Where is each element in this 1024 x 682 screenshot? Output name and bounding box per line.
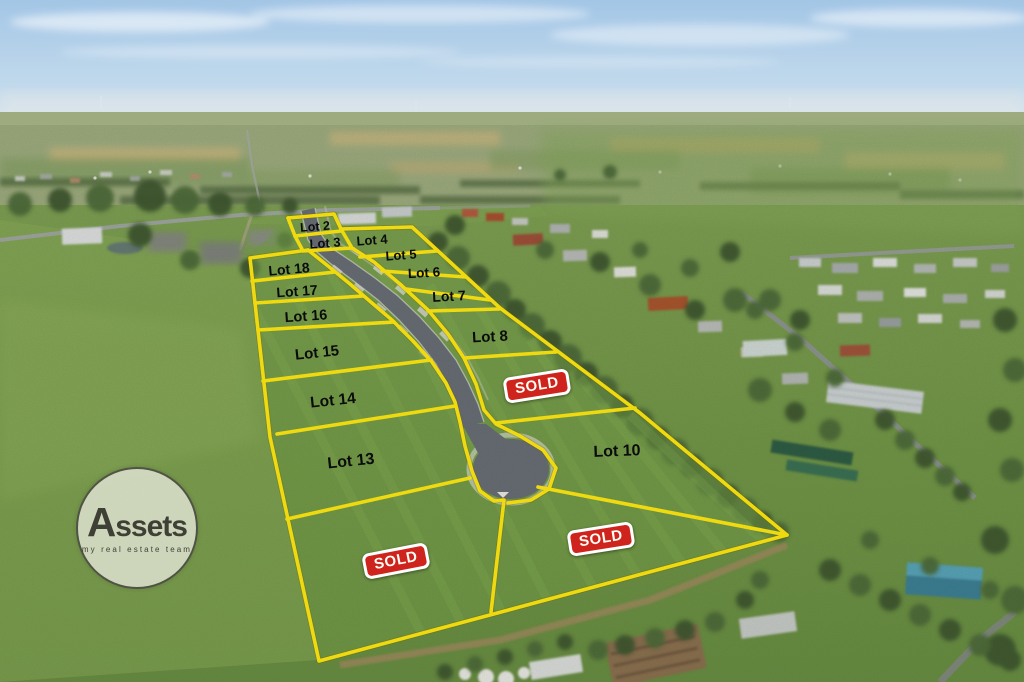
aerial-subdivision-photo: Lot 2Lot 3Lot 4Lot 5Lot 6Lot 7Lot 8Lot 1… bbox=[0, 0, 1024, 682]
agency-watermark-logo: Assets my real estate team bbox=[76, 467, 198, 589]
agency-brand-name: Assets bbox=[87, 502, 187, 543]
photo-grain bbox=[0, 125, 1024, 682]
agency-tagline: my real estate team bbox=[82, 545, 192, 554]
